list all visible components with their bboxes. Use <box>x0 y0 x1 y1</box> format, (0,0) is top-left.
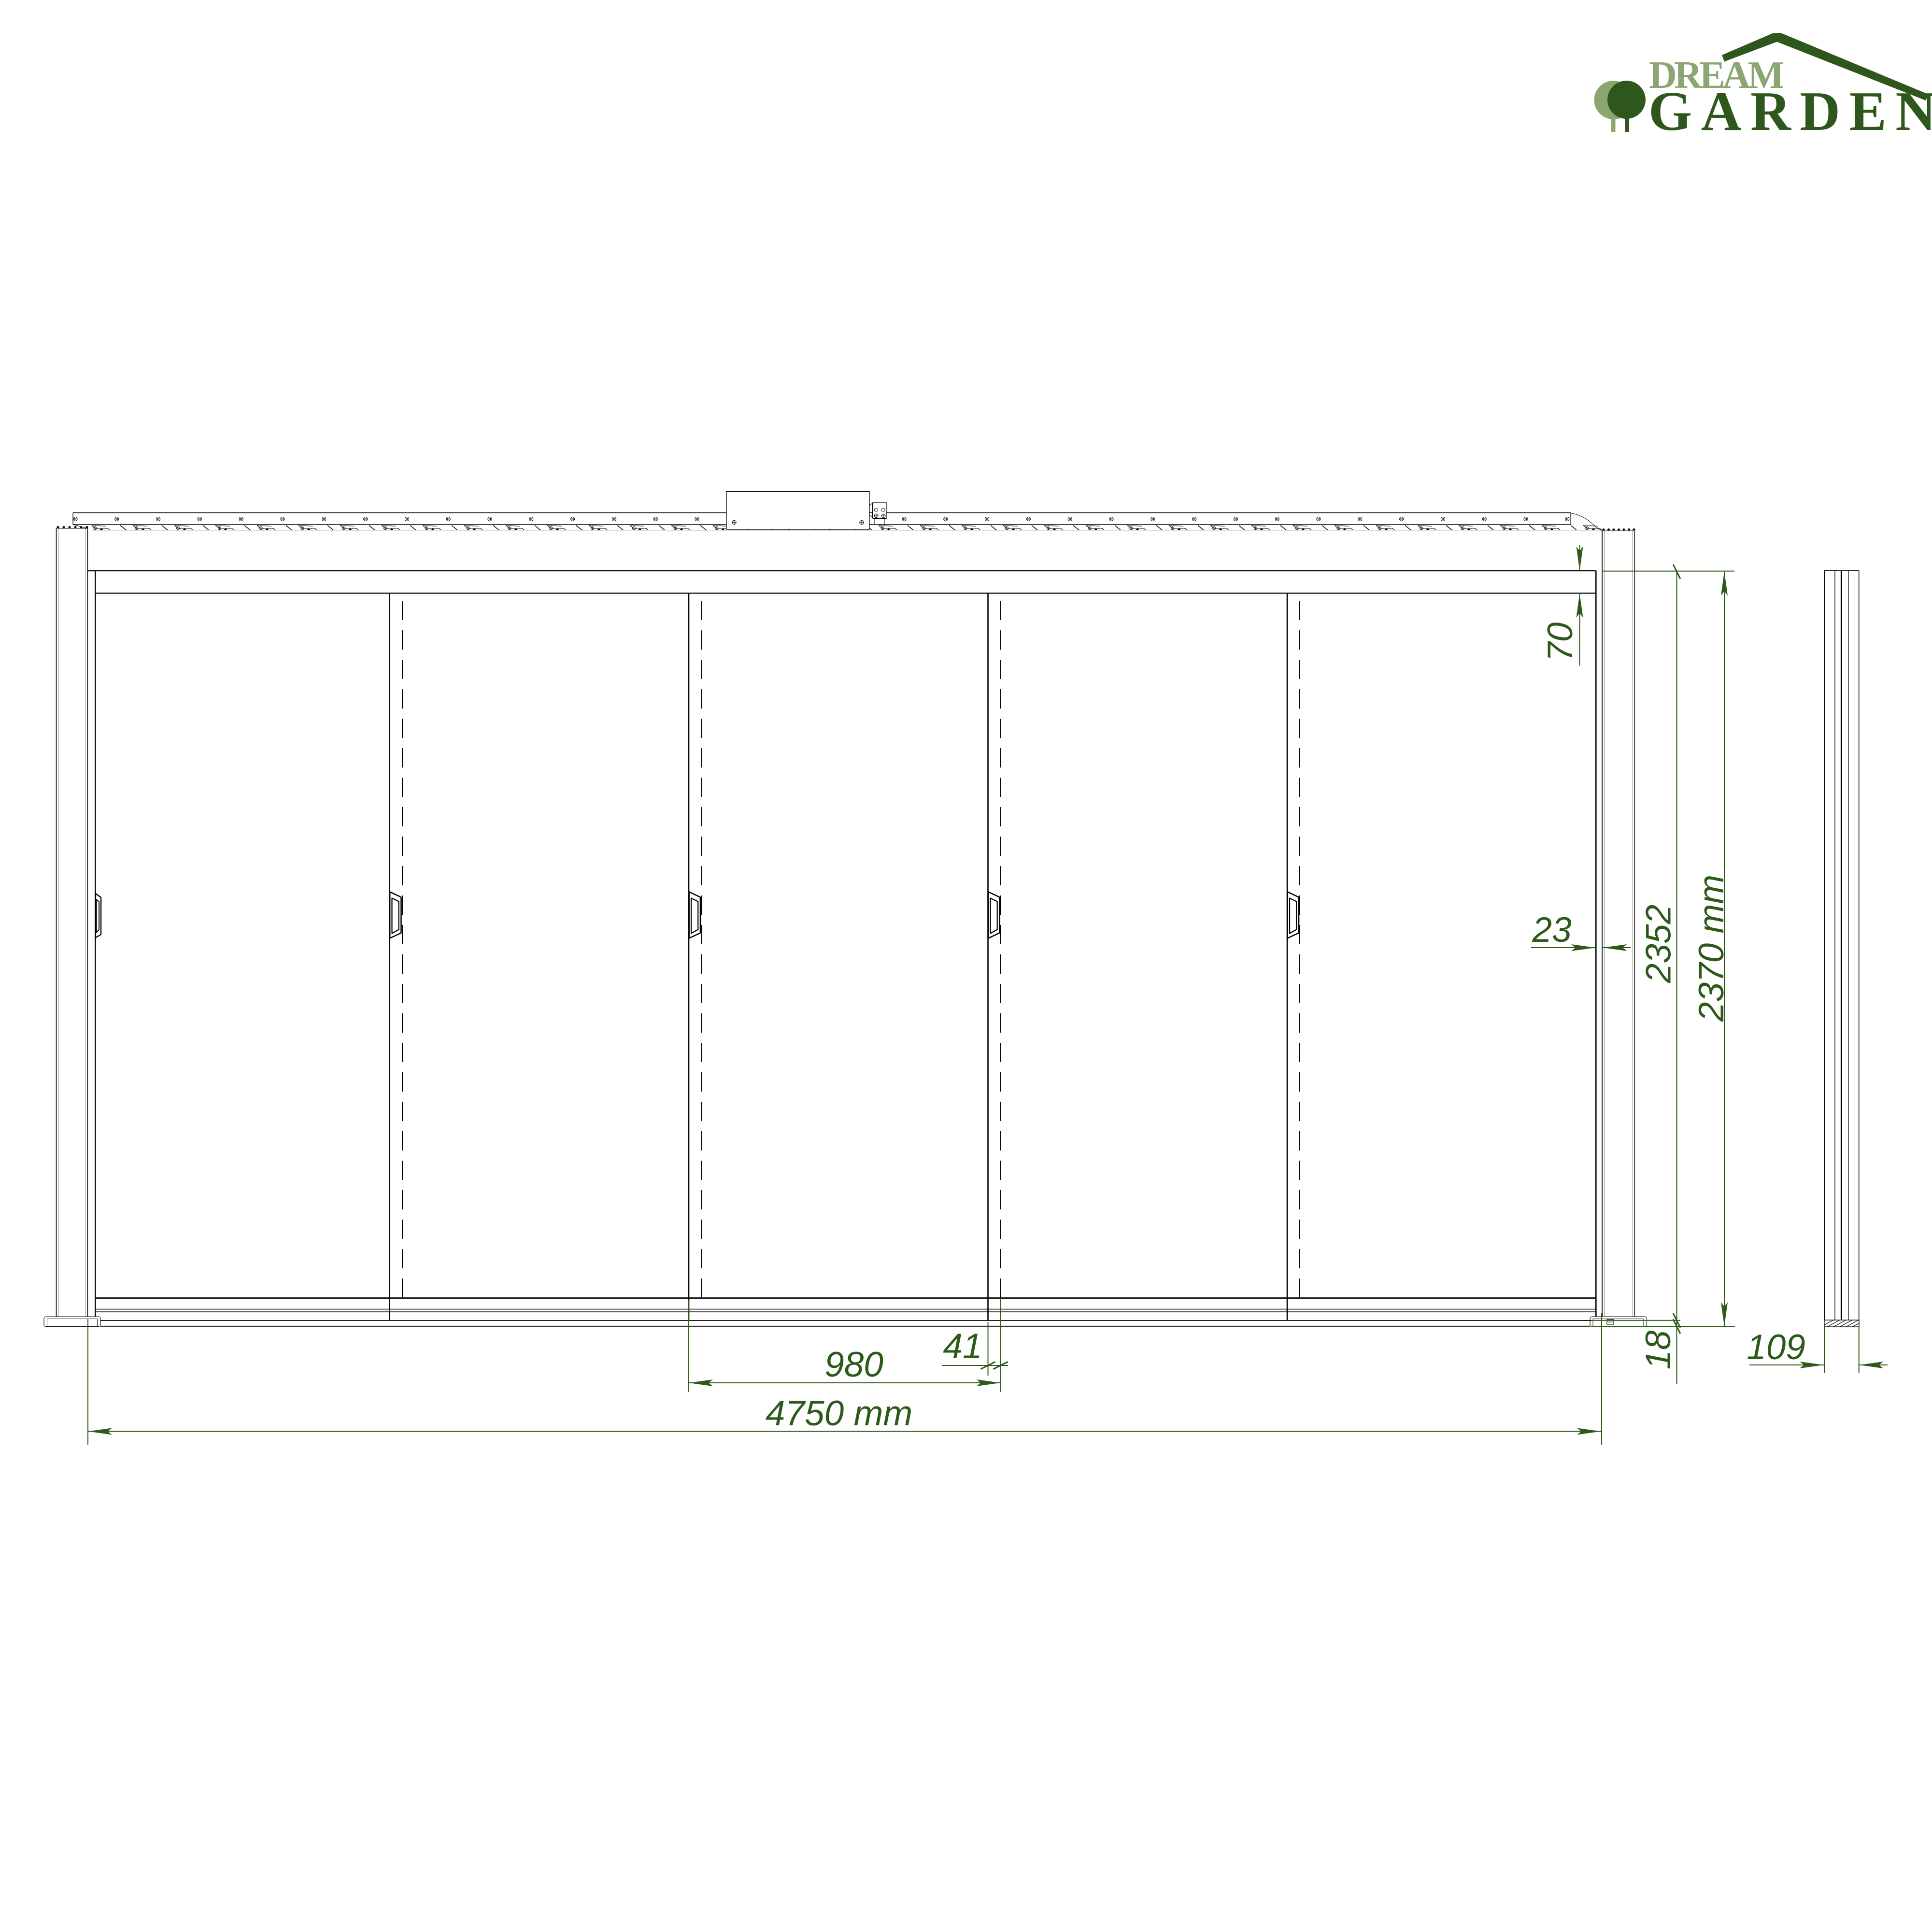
svg-text:109: 109 <box>1747 1328 1805 1367</box>
svg-text:4750 mm: 4750 mm <box>766 1394 912 1433</box>
svg-text:41: 41 <box>943 1327 982 1366</box>
svg-text:GARDEN: GARDEN <box>1648 81 1932 142</box>
svg-text:2352: 2352 <box>1639 905 1678 983</box>
svg-text:23: 23 <box>1532 910 1571 950</box>
svg-text:18: 18 <box>1639 1330 1678 1370</box>
svg-text:70: 70 <box>1541 622 1580 661</box>
svg-text:980: 980 <box>824 1345 883 1384</box>
svg-text:2370 mm: 2370 mm <box>1692 875 1731 1022</box>
